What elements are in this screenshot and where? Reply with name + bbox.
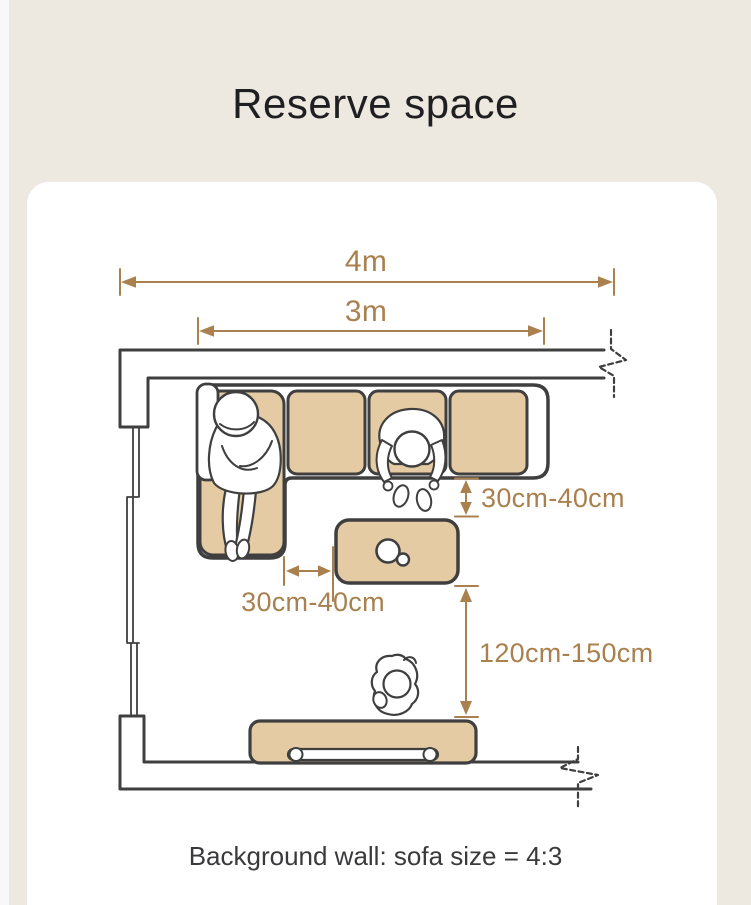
room-width-label: 4m (345, 245, 387, 278)
table-to-tv-label: 120cm-150cm (479, 638, 653, 668)
person-walking (371, 655, 418, 715)
sofa-width-label: 3m (345, 295, 387, 328)
tv (288, 748, 438, 761)
dimension-sofa-to-table: 30cm-40cm (455, 479, 625, 517)
caption: Background wall: sofa size = 4:3 (0, 840, 751, 873)
coffee-table (336, 520, 458, 583)
bottom-right-break (560, 747, 598, 809)
dimension-table-to-tv: 120cm-150cm (455, 586, 653, 717)
top-right-break (599, 330, 626, 397)
tv-stand (250, 721, 476, 763)
floor-plan-diagram: 4m 3m 30cm-40cm 30cm-40cm 120cm-150cm (0, 0, 751, 905)
sofa-cushion (288, 391, 365, 474)
sofa-side-gap-label: 30cm-40cm (241, 587, 385, 617)
sofa-cushion (450, 391, 527, 474)
sofa-to-table-label: 30cm-40cm (481, 483, 625, 513)
person-sitting-leaning-forward (377, 409, 446, 512)
left-window-wall (127, 427, 139, 716)
dimension-sofa-width: 3m (198, 295, 544, 344)
dimension-room-width: 4m (120, 245, 614, 295)
